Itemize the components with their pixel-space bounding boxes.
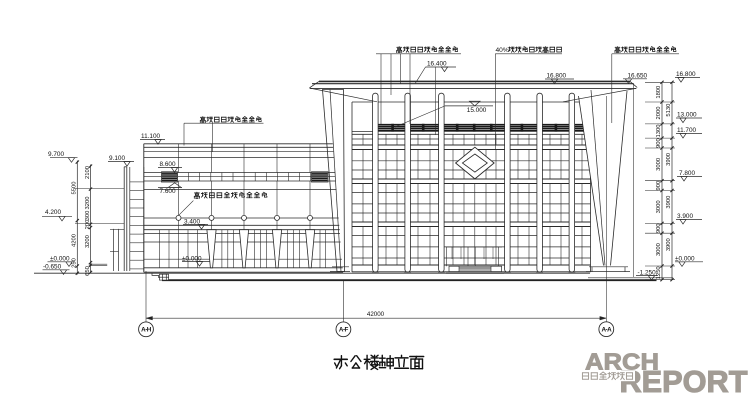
svg-text:REPORT: REPORT	[620, 364, 748, 399]
svg-text:5500: 5500	[72, 182, 78, 195]
svg-text:3900: 3900	[666, 153, 672, 166]
svg-text:16.400: 16.400	[427, 61, 447, 68]
svg-text:3000: 3000	[656, 158, 662, 171]
svg-text:3200: 3200	[85, 235, 91, 248]
svg-text:3000: 3000	[656, 243, 662, 256]
svg-text:5130: 5130	[666, 104, 672, 117]
svg-text:13.000: 13.000	[677, 112, 697, 119]
svg-text:7.600: 7.600	[160, 188, 176, 195]
svg-text:900: 900	[656, 223, 662, 233]
svg-text:A-F: A-F	[339, 327, 349, 334]
svg-text:3900: 3900	[666, 196, 672, 209]
svg-text:A-A: A-A	[601, 327, 612, 334]
svg-text:650: 650	[85, 266, 91, 276]
svg-text:1300: 1300	[656, 125, 662, 138]
svg-text:4200: 4200	[72, 234, 78, 247]
svg-text:1800: 1800	[656, 86, 662, 99]
svg-text:1250: 1250	[656, 266, 662, 279]
svg-text:3200: 3200	[85, 197, 91, 210]
svg-text:3000: 3000	[656, 200, 662, 213]
svg-text:900: 900	[656, 181, 662, 191]
svg-text:200: 200	[85, 220, 91, 230]
svg-text:16.800: 16.800	[676, 71, 696, 78]
svg-text:900: 900	[656, 138, 662, 148]
svg-text:2100: 2100	[85, 166, 91, 179]
svg-text:40%: 40%	[496, 47, 509, 54]
svg-text:A-H: A-H	[141, 327, 152, 334]
svg-text:42000: 42000	[367, 311, 385, 318]
svg-text:300: 300	[85, 211, 91, 221]
svg-text:4.200: 4.200	[45, 209, 61, 216]
svg-text:2000: 2000	[656, 107, 662, 120]
svg-text:16.650: 16.650	[628, 73, 648, 80]
svg-text:250: 250	[72, 258, 78, 268]
svg-text:-0.650: -0.650	[43, 263, 62, 270]
svg-text:9.700: 9.700	[48, 151, 64, 158]
svg-text:3900: 3900	[666, 238, 672, 251]
svg-text:15.000: 15.000	[467, 107, 487, 114]
svg-text:16.800: 16.800	[547, 73, 567, 80]
